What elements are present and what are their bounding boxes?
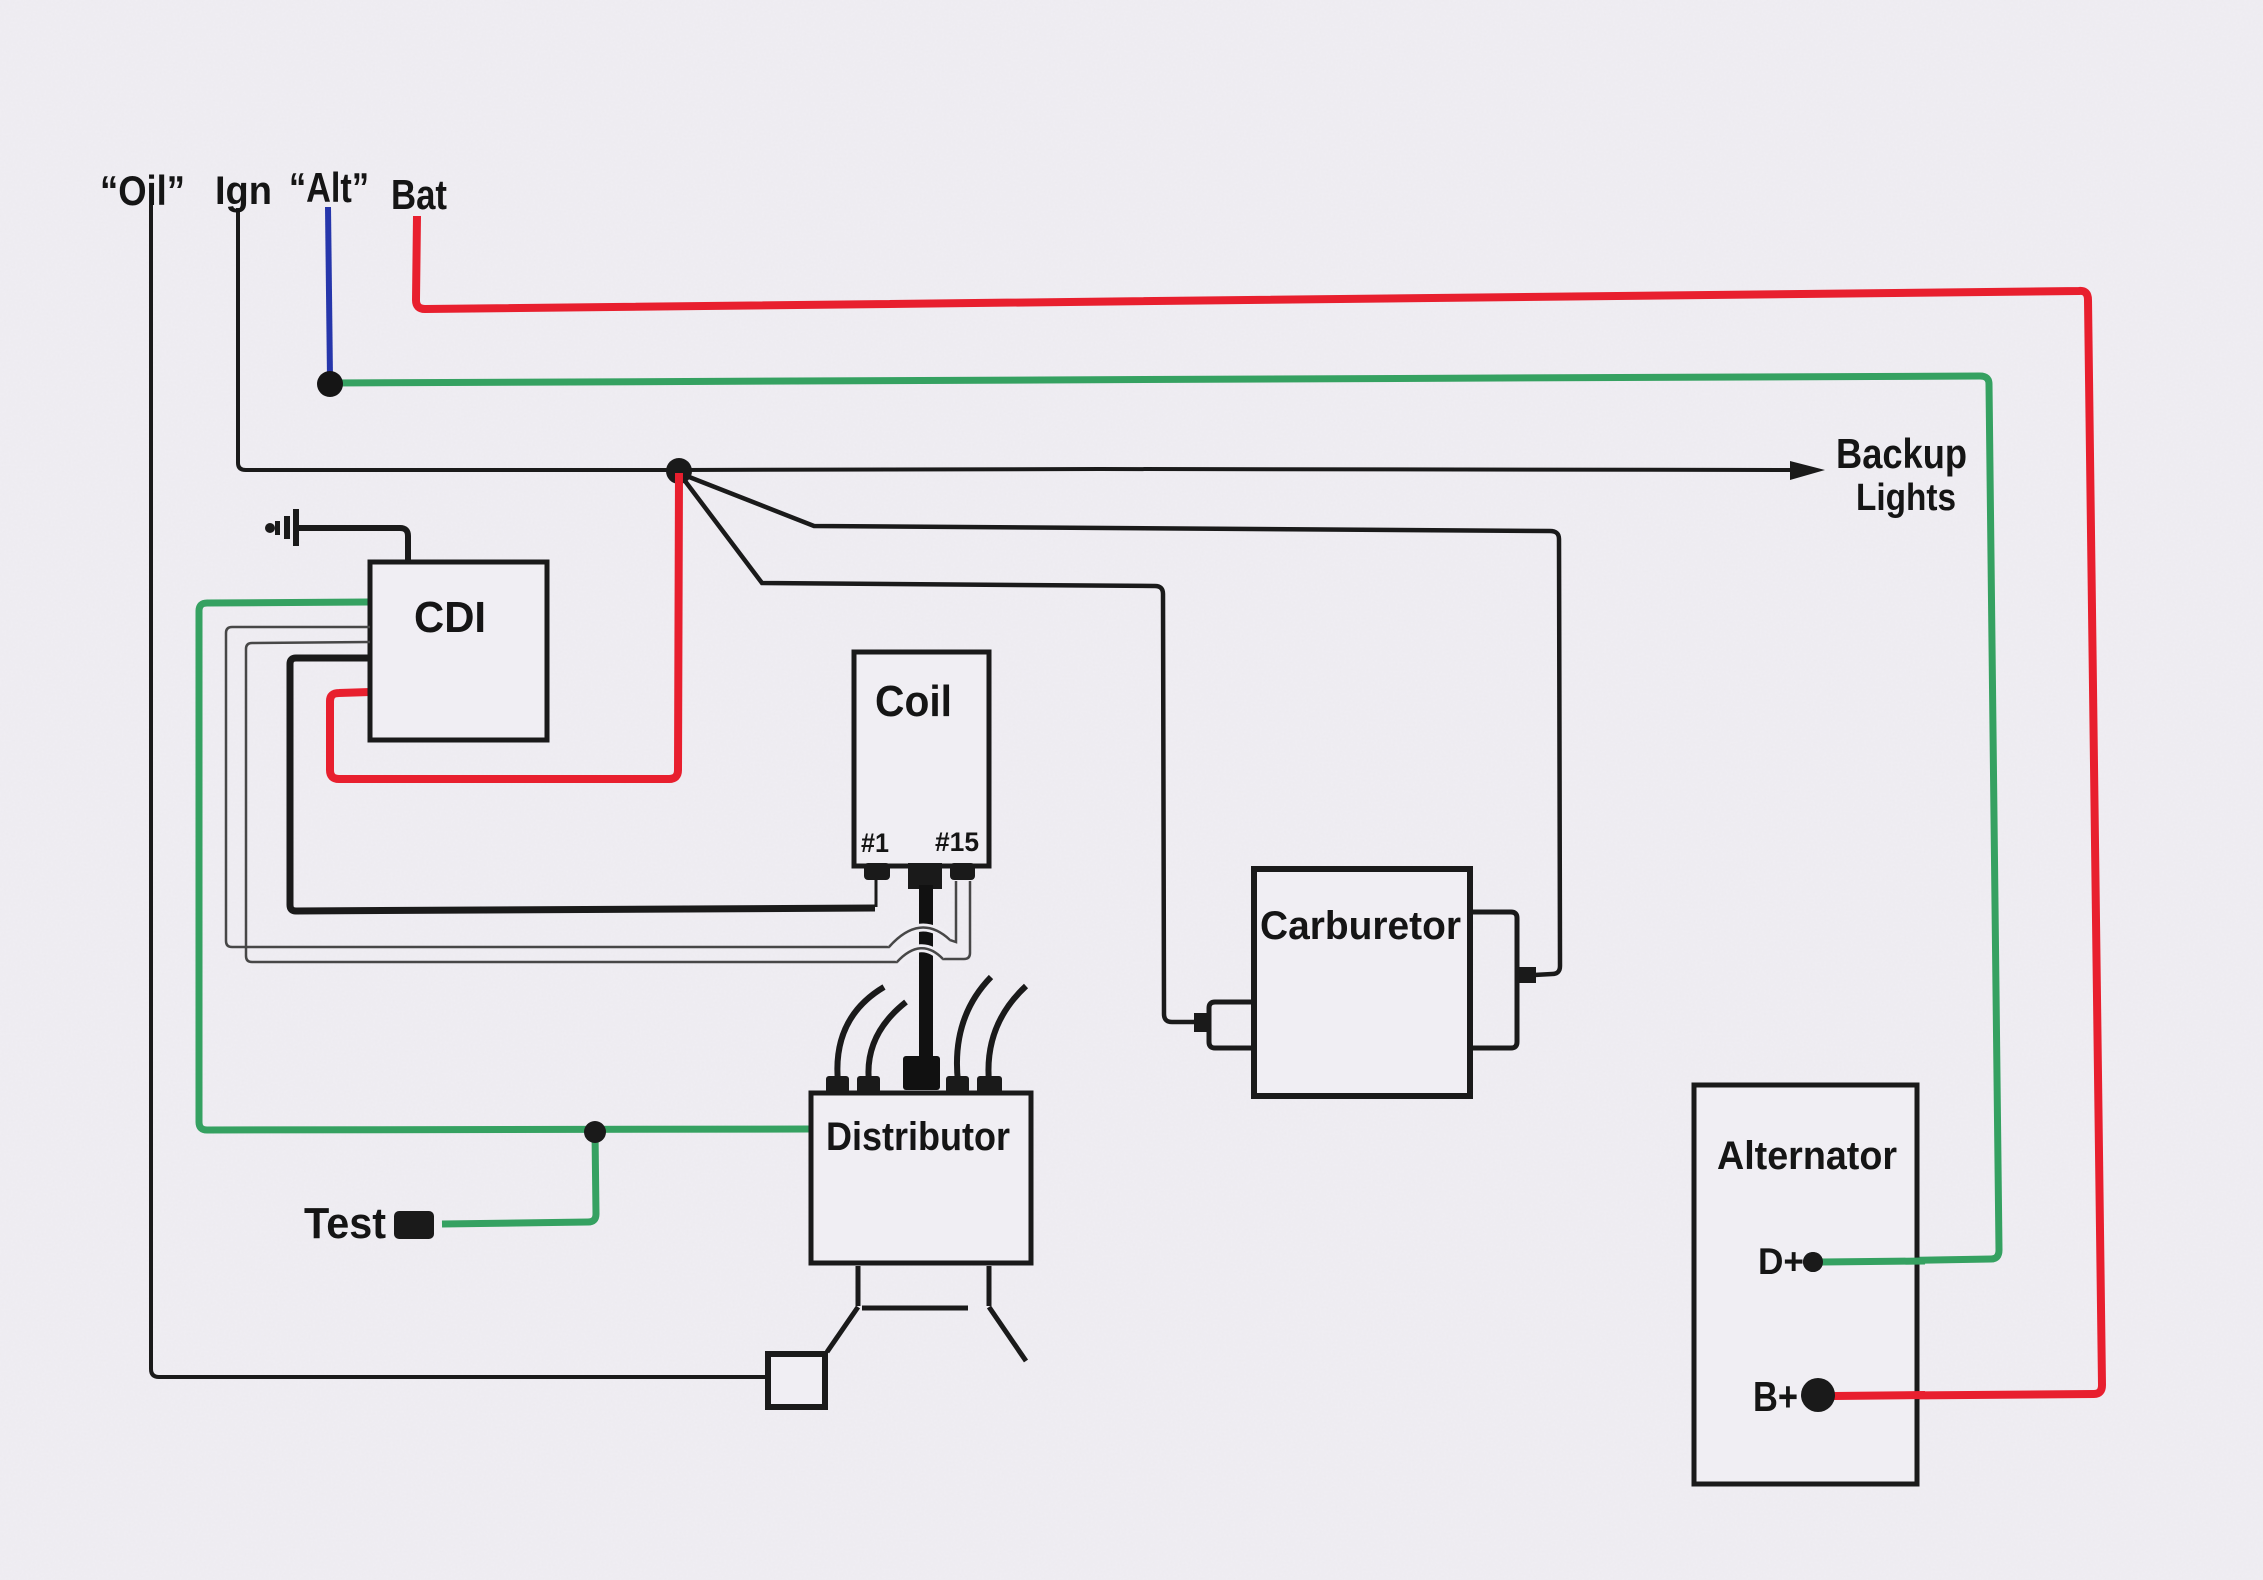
svg-text:Distributor: Distributor <box>826 1115 1010 1159</box>
svg-text:Alternator: Alternator <box>1717 1134 1897 1178</box>
svg-text:Carburetor: Carburetor <box>1260 904 1461 948</box>
svg-text:#15: #15 <box>935 827 979 857</box>
svg-text:Ign: Ign <box>215 169 272 213</box>
svg-text:Lights: Lights <box>1856 477 1956 519</box>
svg-text:#1: #1 <box>861 828 889 858</box>
svg-text:Coil: Coil <box>875 677 952 726</box>
svg-text:Backup: Backup <box>1836 430 1967 477</box>
svg-text:CDI: CDI <box>414 593 486 642</box>
svg-text:“Oil”: “Oil” <box>100 167 185 214</box>
svg-text:“Alt”: “Alt” <box>289 164 369 211</box>
svg-text:B+: B+ <box>1753 1373 1798 1420</box>
svg-text:Test: Test <box>304 1199 386 1248</box>
svg-text:D+: D+ <box>1758 1241 1804 1282</box>
svg-text:Bat: Bat <box>391 171 447 218</box>
